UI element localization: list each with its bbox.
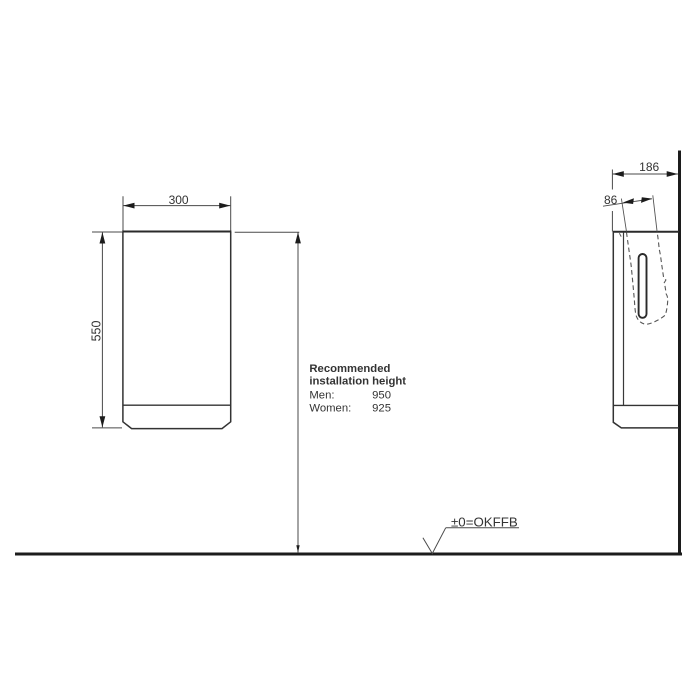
svg-text:950: 950 bbox=[372, 389, 391, 401]
svg-text:Women:: Women: bbox=[309, 402, 351, 414]
svg-text:±0=OKFFB: ±0=OKFFB bbox=[451, 515, 518, 530]
svg-text:Men:: Men: bbox=[309, 389, 334, 401]
svg-text:86: 86 bbox=[604, 193, 618, 207]
svg-text:186: 186 bbox=[639, 160, 659, 174]
svg-text:Recommended: Recommended bbox=[309, 363, 390, 375]
svg-text:300: 300 bbox=[169, 193, 189, 207]
svg-text:installation height: installation height bbox=[309, 376, 406, 388]
svg-text:925: 925 bbox=[372, 402, 391, 414]
svg-text:550: 550 bbox=[90, 321, 104, 342]
